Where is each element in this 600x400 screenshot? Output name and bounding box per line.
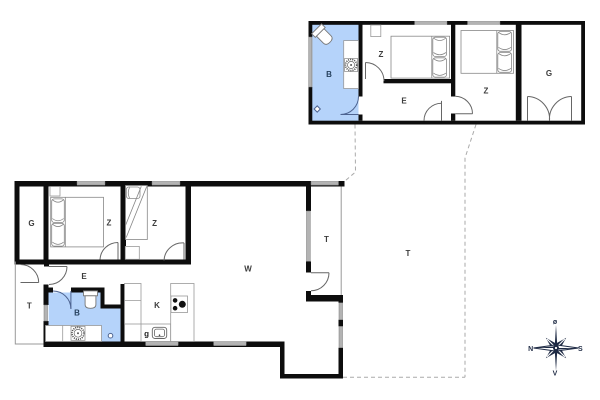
svg-text:E: E xyxy=(81,272,87,281)
svg-text:S: S xyxy=(578,346,583,353)
svg-text:W: W xyxy=(244,265,252,274)
svg-text:g: g xyxy=(144,329,149,338)
svg-text:T: T xyxy=(27,302,32,311)
svg-text:T: T xyxy=(324,235,329,244)
svg-text:Z: Z xyxy=(379,50,384,59)
svg-text:G: G xyxy=(28,219,34,228)
svg-text:B: B xyxy=(326,70,332,79)
svg-text:V: V xyxy=(553,371,558,378)
svg-text:E: E xyxy=(401,96,407,105)
svg-text:K: K xyxy=(154,301,160,310)
svg-text:T: T xyxy=(406,249,411,258)
svg-text:ø: ø xyxy=(553,319,558,326)
svg-text:G: G xyxy=(546,69,552,78)
svg-text:Z: Z xyxy=(107,219,112,228)
svg-text:B: B xyxy=(74,309,80,318)
svg-text:Z: Z xyxy=(152,219,157,228)
svg-text:N: N xyxy=(528,346,533,353)
svg-text:Z: Z xyxy=(484,86,489,95)
